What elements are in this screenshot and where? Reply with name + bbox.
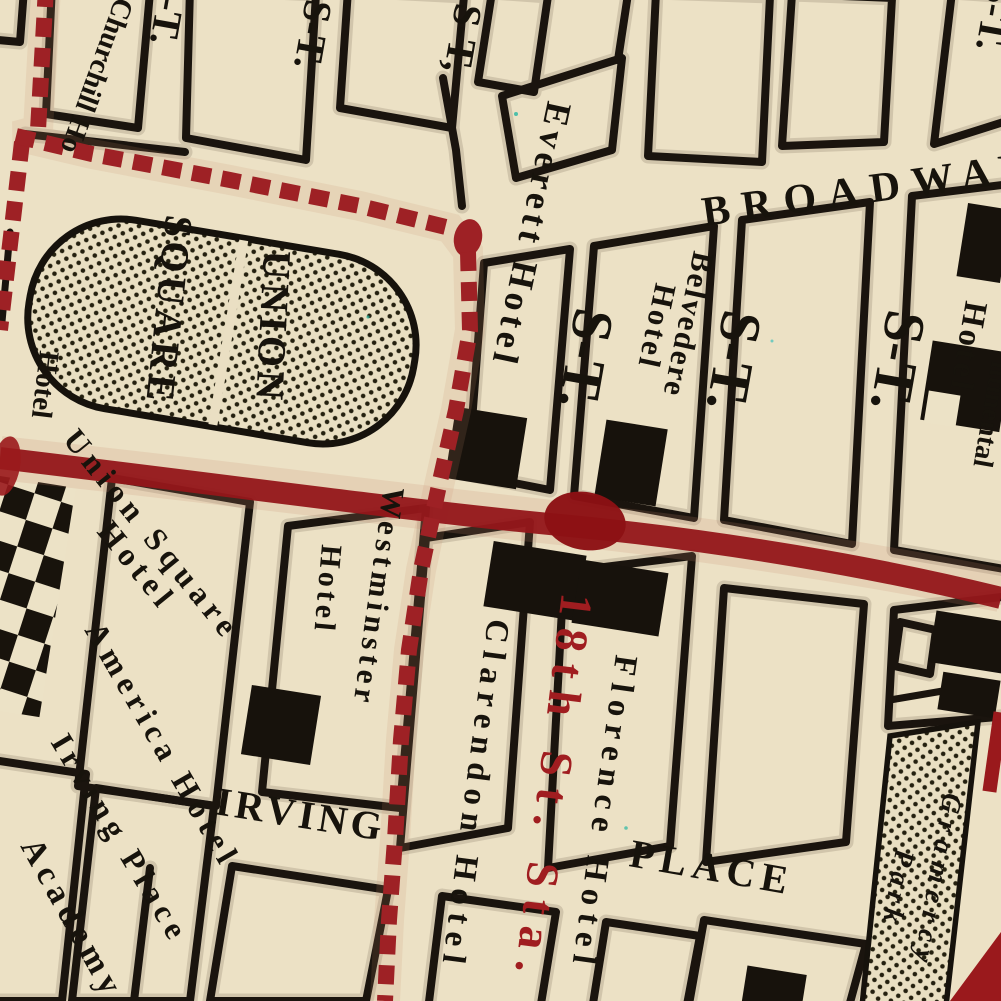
svg-text:UNION: UNION [247, 250, 300, 405]
